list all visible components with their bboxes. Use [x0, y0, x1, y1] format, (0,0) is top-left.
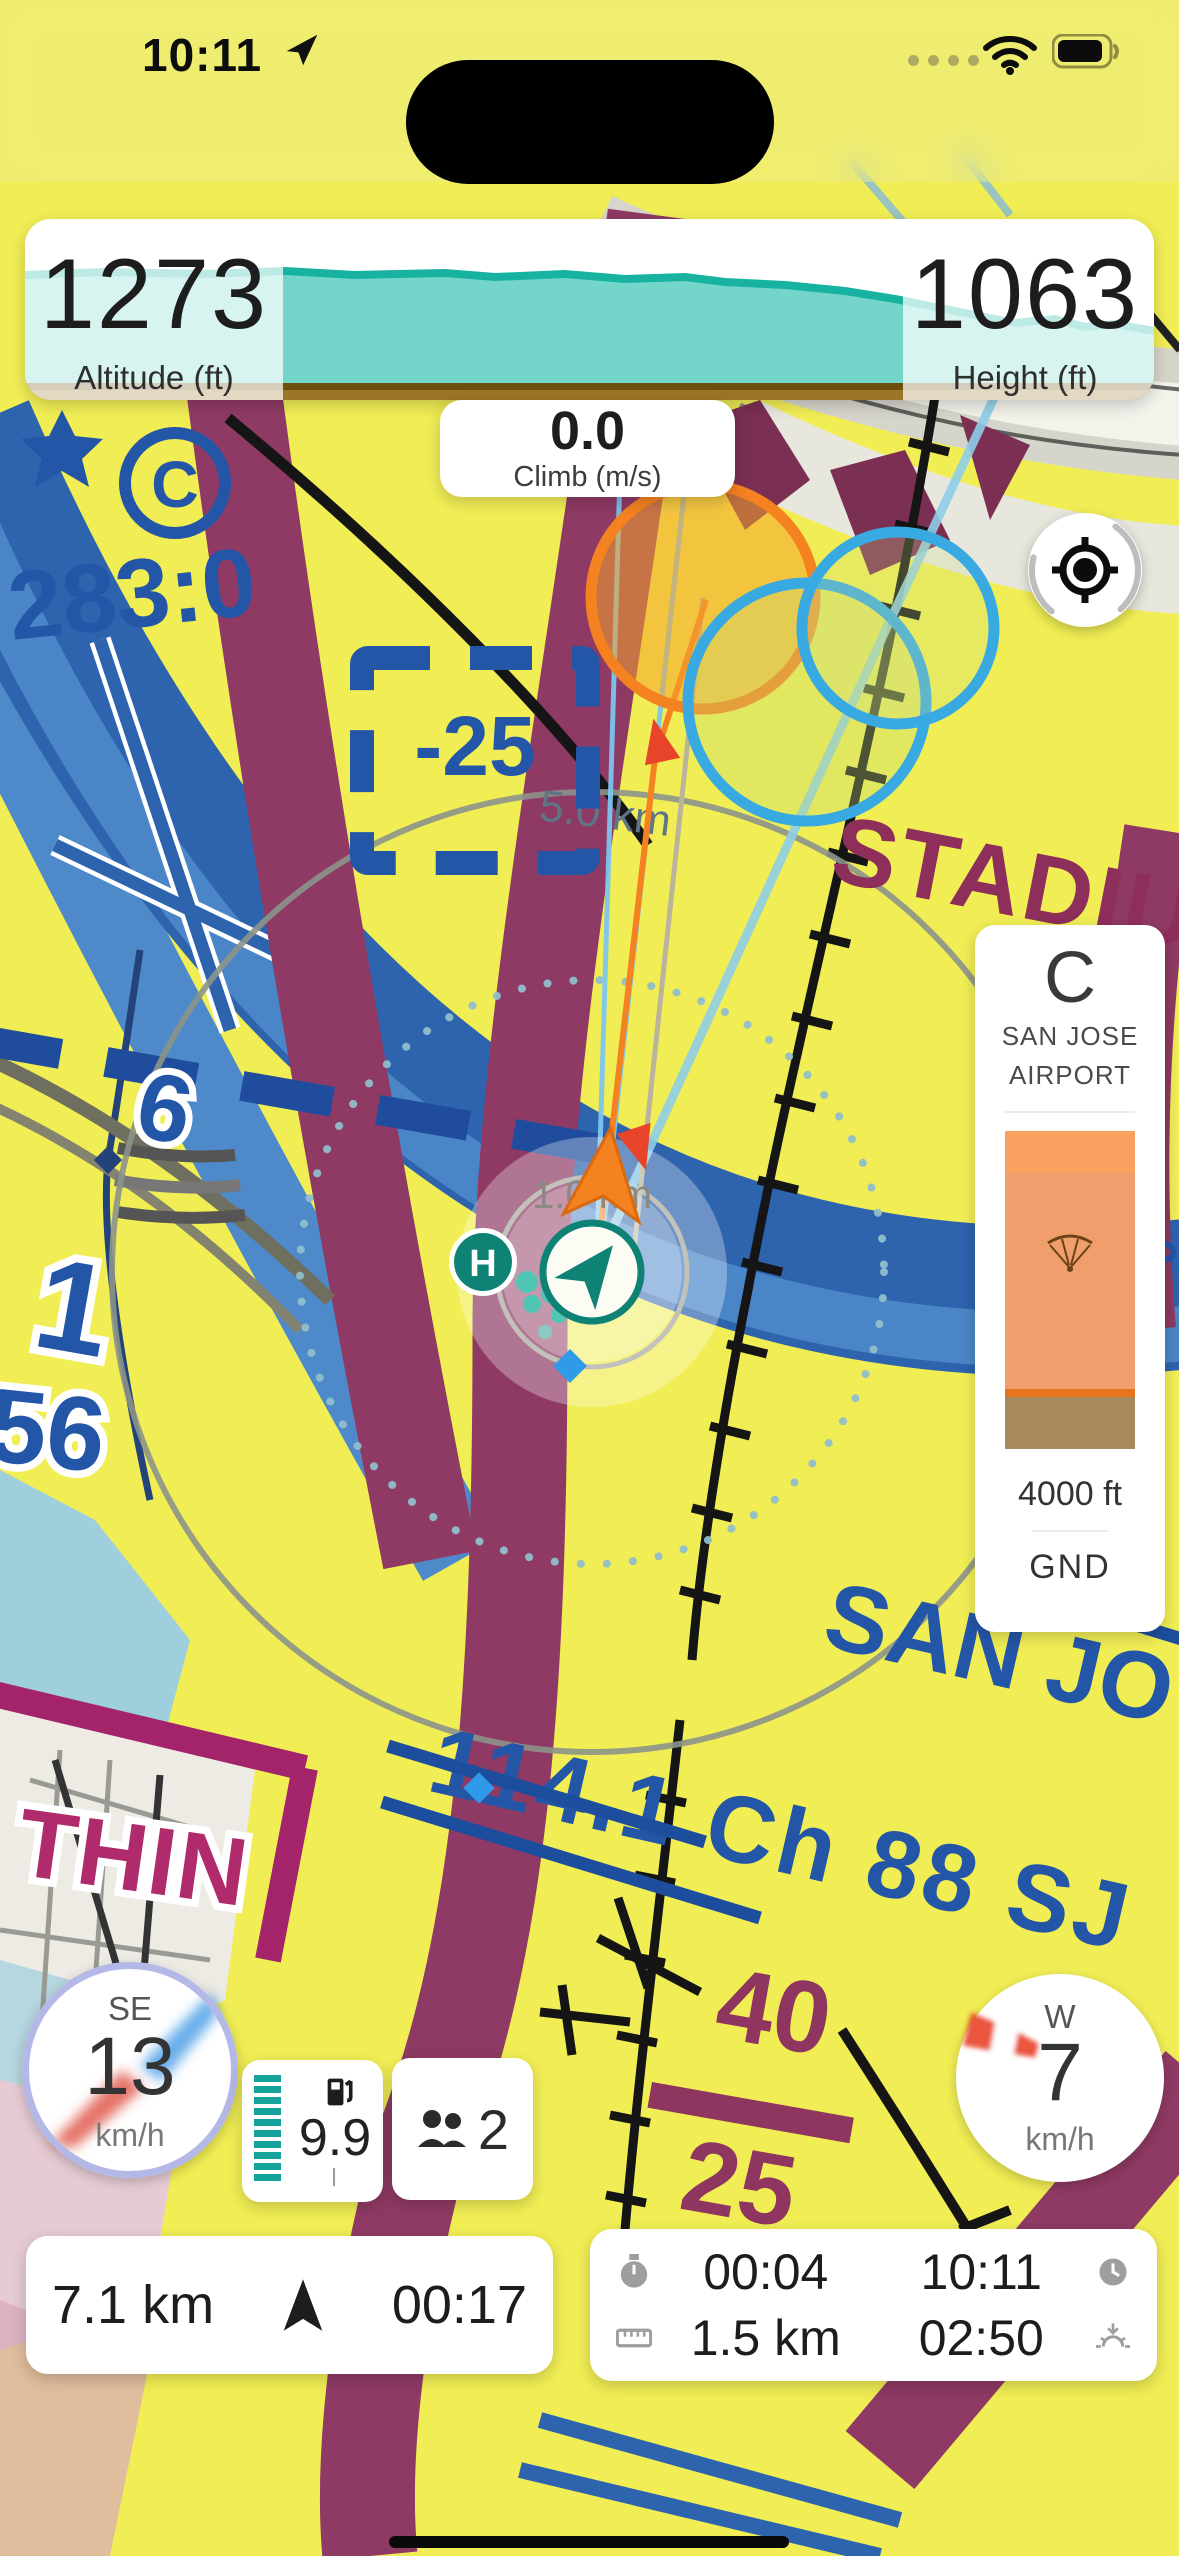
sunset-icon [1096, 2322, 1130, 2354]
svg-text:56: 56 [0, 1367, 111, 1496]
passengers-icon [416, 2109, 468, 2149]
location-arrow-icon [282, 30, 322, 70]
fuel-tick [333, 2168, 335, 2186]
stats-card[interactable]: 00:04 10:11 1.5 km 02:50 [590, 2229, 1157, 2381]
wind-unit: km/h [956, 2121, 1164, 2158]
locate-progress-arc [1028, 513, 1142, 627]
fuel-widget[interactable]: 9.9 [242, 2060, 383, 2202]
divider [1032, 1530, 1108, 1532]
airspace-base-line [1005, 1389, 1135, 1397]
wind-speed: 13 [22, 2020, 238, 2114]
wind-speed: 7 [956, 2026, 1164, 2120]
altitude-value: 1273 [25, 237, 283, 351]
track-time: 00:17 [392, 2274, 527, 2336]
dynamic-island [406, 60, 774, 184]
leg-distance-value: 1.5 km [658, 2309, 874, 2367]
climb-panel[interactable]: 0.0 Climb (m/s) [440, 400, 735, 497]
airspace-class: C [1044, 939, 1096, 1017]
passengers-widget[interactable]: 2 [392, 2058, 533, 2200]
wind-widget-ground[interactable]: SE 13 km/h [22, 1962, 238, 2178]
airspace-name-line1: SAN JOSE [1002, 1017, 1139, 1056]
passengers-count: 2 [478, 2097, 509, 2162]
fuel-pump-icon [324, 2075, 358, 2109]
airspace-circle-cyan-small [802, 532, 994, 724]
sunset-countdown-value: 02:50 [874, 2309, 1090, 2367]
position-marker[interactable] [543, 1223, 641, 1321]
wind-widget-altitude[interactable]: W 7 km/h [956, 1974, 1164, 2182]
airspace-floor-value: GND [1029, 1548, 1111, 1587]
svg-text:C: C [151, 447, 199, 521]
height-label: Height (ft) [896, 359, 1154, 397]
svg-text:-25: -25 [414, 699, 535, 793]
battery-icon [1052, 34, 1122, 70]
home-indicator[interactable] [389, 2536, 789, 2548]
track-bar[interactable]: 7.1 km 00:17 [26, 2236, 553, 2374]
airspace-name-line2: AIRPORT [1009, 1056, 1131, 1095]
locate-button[interactable] [1028, 513, 1142, 627]
cellular-dots-icon [908, 55, 979, 66]
climb-value: 0.0 [550, 403, 625, 459]
nav-arrow-icon [279, 2275, 327, 2335]
svg-text:40: 40 [708, 1946, 840, 2078]
climb-label: Climb (m/s) [513, 461, 661, 494]
app-screen: 5.0 km C 283:0 -25 T 2 6 1 56 VO SAN JO … [0, 0, 1179, 2556]
airspace-ground-band [1005, 1397, 1135, 1449]
airspace-panel[interactable]: C SAN JOSE AIRPORT 4000 ft GND [975, 925, 1165, 1632]
track-distance: 7.1 km [52, 2274, 214, 2336]
airspace-ceiling-value: 4000 ft [1018, 1475, 1122, 1514]
wind-unit: km/h [22, 2117, 238, 2154]
airspace-ceiling-band [1005, 1131, 1135, 1173]
ruler-icon [616, 2325, 652, 2351]
flight-time-value: 00:04 [658, 2243, 874, 2301]
fuel-gauge-bars [254, 2075, 281, 2181]
clock-time-value: 10:11 [874, 2243, 1090, 2301]
status-bar: 10:11 [0, 0, 1179, 130]
svg-text:H: H [469, 1243, 496, 1285]
stopwatch-icon [618, 2254, 650, 2290]
clock-icon [1097, 2256, 1129, 2288]
airspace-column [1005, 1131, 1135, 1449]
altimeter-panel[interactable]: 1273 Altitude (ft) 1063 Height (ft) [25, 219, 1154, 400]
divider [1005, 1111, 1135, 1113]
height-value: 1063 [896, 237, 1154, 351]
altitude-label: Altitude (ft) [25, 359, 283, 397]
wifi-icon [982, 32, 1038, 76]
helipad-marker[interactable]: H [449, 1228, 517, 1296]
paraglider-icon [1042, 1229, 1098, 1275]
fuel-value: 9.9 [290, 2108, 380, 2168]
status-time: 10:11 [142, 28, 262, 82]
